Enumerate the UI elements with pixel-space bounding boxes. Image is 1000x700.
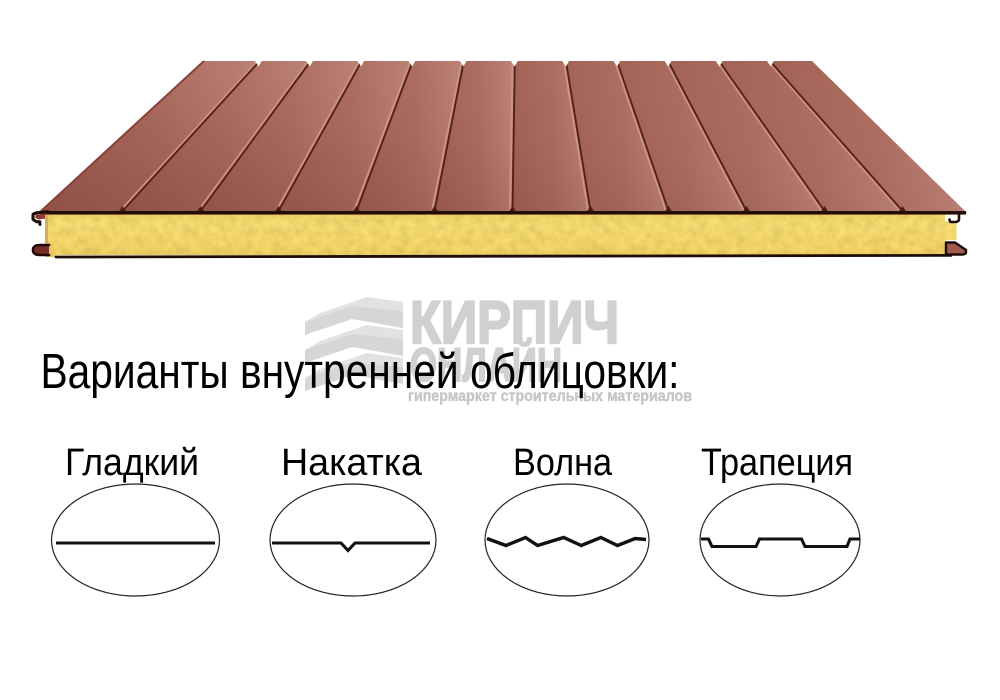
svg-text:Трапеция: Трапеция	[701, 442, 853, 484]
svg-text:Гладкий: Гладкий	[65, 442, 199, 484]
svg-text:Волна: Волна	[513, 442, 613, 484]
svg-text:Варианты внутренней облицовки:: Варианты внутренней облицовки:	[41, 345, 680, 399]
svg-text:Накатка: Накатка	[281, 442, 423, 484]
